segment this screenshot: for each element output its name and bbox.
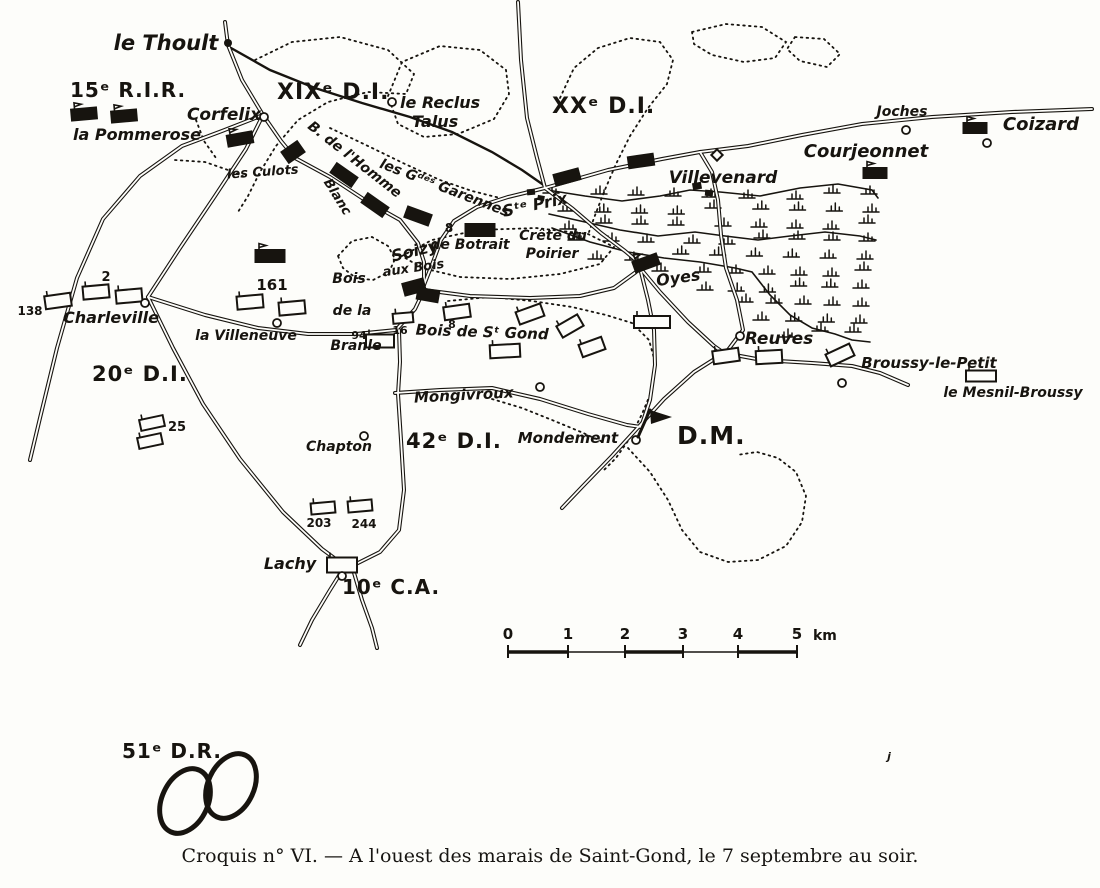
black-unit-symbol [627, 153, 654, 169]
hill-contour [560, 38, 673, 232]
black-unit-symbol [361, 193, 389, 218]
scale-bar: 012345km [503, 625, 837, 658]
regiment-number-label: 25 [168, 420, 186, 435]
road-path [352, 394, 404, 566]
scale-bar-tick-label: 0 [503, 625, 513, 643]
marsh-tuft-icon [845, 324, 861, 332]
scale-bar-tick-label: 3 [678, 625, 688, 643]
marsh-tuft-icon [737, 294, 753, 302]
white-unit-symbol [392, 307, 413, 324]
black-unit-symbol [225, 125, 254, 147]
marsh-tuft-icon [588, 251, 604, 259]
white-unit-symbol [443, 299, 471, 320]
marsh-tuft-icon [859, 215, 875, 223]
marsh-tuft-icon [751, 219, 767, 227]
hamlet-ring-icon [260, 113, 268, 121]
black-unit-symbol [963, 117, 987, 134]
marsh-tuft-icon [715, 218, 731, 226]
white-unit-symbol [115, 283, 142, 303]
division-label: XXᵉ D.I. [552, 94, 655, 119]
road-path-fill [352, 394, 404, 566]
white-unit-symbol [44, 288, 72, 309]
marsh-tuft-icon [754, 230, 770, 238]
black-unit-symbol [553, 168, 581, 186]
place-label: Talus [412, 112, 458, 131]
regiment-number-label: 94 [351, 329, 367, 342]
marsh-tuft-icon [787, 220, 803, 228]
black-unit-symbol [404, 206, 433, 226]
division-label: 15ᵉ R.I.R. [70, 78, 186, 102]
place-label: Courjeonnet [804, 141, 930, 162]
black-unit-symbol [70, 101, 97, 121]
marsh-tuft-icon [673, 246, 689, 254]
division-label: 20ᵉ D.I. [92, 362, 188, 386]
regiment-number-label: 2 [101, 270, 110, 285]
place-label: Lachy [264, 554, 317, 573]
marsh-tuft-icon [824, 185, 840, 193]
regiment-number-label: 138 [17, 304, 42, 318]
regiment-number-label: 16 [392, 324, 408, 337]
marsh-tuft-icon [823, 221, 839, 229]
scale-bar-tick-label: 4 [733, 625, 743, 643]
marsh-tuft-icon [820, 250, 836, 258]
division-label: D.M. [677, 421, 746, 450]
place-label: Bois de Sᵗ Gond [415, 321, 549, 344]
black-unit-symbol [863, 162, 887, 179]
marsh-tuft-icon [791, 278, 807, 286]
marsh-tuft-icon [759, 266, 775, 274]
white-unit-symbol [823, 339, 854, 366]
marsh-tuft-icon [863, 204, 879, 212]
marsh-tuft-icon [746, 248, 762, 256]
place-label: Broussy-le-Petit [861, 354, 997, 372]
division-label: 51ᵉ D.R. [122, 739, 222, 763]
marsh-edge [552, 228, 870, 342]
scale-bar-tick-label: 1 [563, 625, 573, 643]
hamlet-ring-icon [536, 383, 544, 391]
place-label: Villevenard [669, 168, 778, 188]
regiment-number-label: 203 [306, 516, 331, 530]
white-unit-symbol [138, 410, 165, 431]
place-label: Corfelix [187, 105, 262, 125]
white-unit-symbol [278, 295, 305, 315]
black-unit-symbol [110, 103, 137, 123]
place-label: j [885, 750, 891, 763]
place-label: la Villeneuve [195, 328, 297, 344]
marsh-tuft-icon [783, 249, 799, 257]
scale-bar-unit-label: km [813, 628, 837, 644]
marsh-tuft-icon [632, 205, 648, 213]
scale-bar-tick-label: 2 [620, 625, 630, 643]
place-label: Joches [874, 104, 928, 120]
marsh-tuft-icon [753, 312, 769, 320]
place-label: Crête du [519, 228, 587, 244]
marsh-tuft-icon [853, 280, 869, 288]
white-unit-symbol [554, 310, 584, 338]
division-label: 10ᵉ C.A. [342, 575, 440, 599]
marsh-tuft-icon [857, 251, 873, 259]
white-unit-symbol [514, 299, 545, 325]
marsh-tuft-icon [853, 298, 869, 306]
marsh-tuft-icon [791, 267, 807, 275]
hamlet-ring-icon [273, 319, 281, 327]
marsh-tuft-icon [795, 296, 811, 304]
hamlet-ring-icon [983, 139, 991, 147]
regiment-number-label: 244 [351, 517, 376, 531]
marsh-tuft-icon [787, 191, 803, 199]
white-unit-symbol [136, 428, 163, 449]
place-label: de la [333, 303, 372, 319]
marsh-tuft-icon [823, 268, 839, 276]
hamlet-ring-icon [838, 379, 846, 387]
place-label: Mongivroux [414, 383, 516, 406]
hill-contour [692, 24, 786, 62]
place-label: Poirier [526, 246, 580, 262]
white-unit-symbol [310, 496, 335, 514]
hill-contour [628, 448, 806, 562]
marsh-tuft-icon [596, 215, 612, 223]
marsh-tuft-icon [753, 201, 769, 209]
place-label: Oyes [655, 265, 702, 290]
marsh-tuft-icon [824, 297, 840, 305]
marsh-tuft-icon [668, 206, 684, 214]
marsh-tuft-icon [851, 315, 867, 323]
place-label: le Reclus [400, 93, 480, 112]
place-label: Charleville [63, 308, 159, 327]
division-label: XIXᵉ D.I. [277, 80, 389, 105]
place-label: de Botrait [430, 237, 511, 253]
marsh-tuft-icon [591, 186, 607, 194]
white-unit-symbol [577, 332, 606, 357]
marsh-tuft-icon [818, 314, 834, 322]
place-label: la Pommerose [73, 125, 201, 144]
place-label: Mondement [518, 429, 619, 447]
marsh-tuft-icon [628, 187, 644, 195]
place-label: Bois [332, 271, 365, 287]
division-label: 42ᵉ D.I. [406, 429, 502, 453]
white-unit-symbol [347, 494, 372, 512]
place-label: Reuves [745, 329, 814, 349]
place-label: aux Bois [382, 257, 446, 281]
regiment-number-label: 8 [445, 221, 453, 235]
place-label: Chapton [306, 439, 372, 455]
hamlet-ring-icon [736, 332, 744, 340]
place-label: le Mesnil-Broussy [943, 385, 1083, 401]
village-block-icon [705, 190, 713, 197]
place-label: le Thoult [114, 31, 220, 55]
black-unit-symbol [255, 244, 285, 263]
scale-bar-tick-label: 5 [792, 625, 802, 643]
black-unit-symbol [465, 224, 495, 237]
road-path [518, 2, 545, 188]
map-canvas: le ThoultCorfelixla Pommerosele ReclusTa… [0, 0, 1100, 888]
marsh-tuft-icon [826, 203, 842, 211]
road-path-fill [518, 2, 545, 188]
marsh-tuft-icon [632, 216, 648, 224]
place-label: Coizard [1003, 114, 1080, 135]
croquis-map-page: le ThoultCorfelixla Pommerosele ReclusTa… [0, 0, 1100, 888]
marsh-tuft-icon [855, 262, 871, 270]
marsh-channel [549, 214, 876, 240]
marsh-tufts-layer [543, 185, 879, 337]
marsh-tuft-icon [668, 217, 684, 225]
regiment-number-label: 161 [256, 276, 287, 294]
marsh-tuft-icon [790, 202, 806, 210]
hill-contour [787, 37, 840, 67]
marsh-tuft-icon [822, 279, 838, 287]
village-dot-icon [224, 39, 232, 47]
mondement-flag-icon [650, 410, 672, 424]
hamlet-ring-icon [141, 299, 149, 307]
regiment-number-label: 8 [448, 318, 456, 331]
hamlet-ring-icon [902, 126, 910, 134]
marsh-tuft-icon [684, 235, 700, 243]
map-caption: Croquis n° VI. — A l'ouest des marais de… [0, 845, 1100, 867]
